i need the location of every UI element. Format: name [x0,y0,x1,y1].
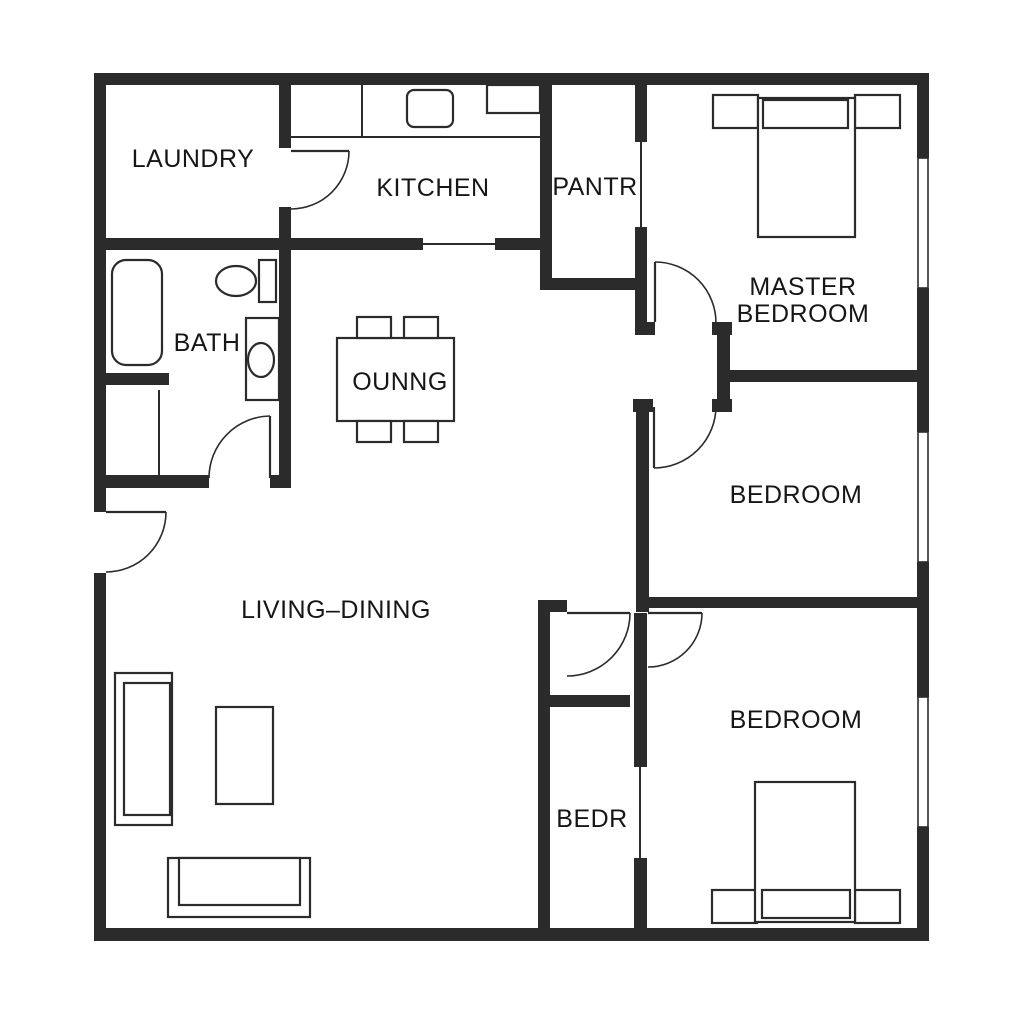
wall [94,73,106,512]
wall [712,322,732,335]
wall [94,373,169,385]
sofa-vertical-inner [124,683,170,815]
room-label-living-dining: LIVING–DINING [241,596,431,624]
room-label-laundry: LAUNDRY [132,145,255,173]
wall [635,322,655,335]
wall [638,597,917,608]
room-label-bedroom-middle: BEDROOM [730,481,863,509]
middle-bedroom-door-swing-arc [654,406,716,468]
wall [917,562,929,697]
window [918,432,928,562]
room-label-pantry: PANTR [552,173,637,201]
master-headboard [763,100,848,128]
nightstand [855,890,900,923]
wall [94,73,929,85]
window [918,158,928,288]
dining-chair [357,317,391,338]
room-label-bedroom-bottom: BEDROOM [730,706,863,734]
wall [94,928,929,941]
wall [917,288,929,432]
dining-chair [357,421,391,442]
wall [540,278,643,290]
wall [636,412,649,612]
kitchen-stove [407,90,453,127]
nightstand [712,890,757,923]
bath-sink [248,343,274,377]
entry-door-swing-arc [106,512,166,572]
room-label-master-line1: MASTER [749,273,856,301]
floor-plan-page: LAUNDRYKITCHENPANTRMASTERBEDROOMBATHOUNN… [0,0,1024,1024]
bathtub [112,260,162,365]
wall [712,399,732,412]
room-label-dining-nook: OUNNG [352,368,448,396]
bath-door-swing-arc [209,416,270,478]
bottom-headboard [762,890,850,918]
wall [717,322,730,412]
wall [917,827,929,931]
nightstand [855,95,900,128]
wall [917,85,929,158]
bottom-bedroom-door-swing-arc [648,613,702,667]
nightstand [713,95,758,128]
sofa-horizontal-inner [179,858,300,905]
room-label-kitchen: KITCHEN [376,174,489,202]
armchair [216,707,273,804]
wall [633,399,653,412]
toilet-tank [259,260,276,302]
wall [94,238,423,250]
toilet-bowl [216,266,256,296]
dining-chair [404,317,438,338]
wall [635,85,647,142]
room-label-master-line2: BEDROOM [737,300,870,328]
wall [634,613,647,767]
wall [279,85,291,148]
wall [94,573,106,933]
room-label-bedr: BEDR [556,805,627,833]
wall [94,475,209,488]
wall [270,475,291,488]
wall [540,85,552,287]
wall [634,858,647,930]
window [918,697,928,827]
room-label-bath: BATH [174,329,241,357]
wall [717,370,929,382]
kitchen-appliance [487,85,540,113]
wall [635,227,647,322]
floor-plan-drawing: LAUNDRYKITCHENPANTRMASTERBEDROOMBATHOUNN… [0,0,1024,1024]
laundry-door-swing-arc [291,151,349,209]
wall [540,695,630,707]
vestibule-door-swing-arc [567,613,630,676]
dining-chair [404,421,438,442]
wall [538,600,550,930]
master-bedroom-door-swing-arc [655,262,716,323]
